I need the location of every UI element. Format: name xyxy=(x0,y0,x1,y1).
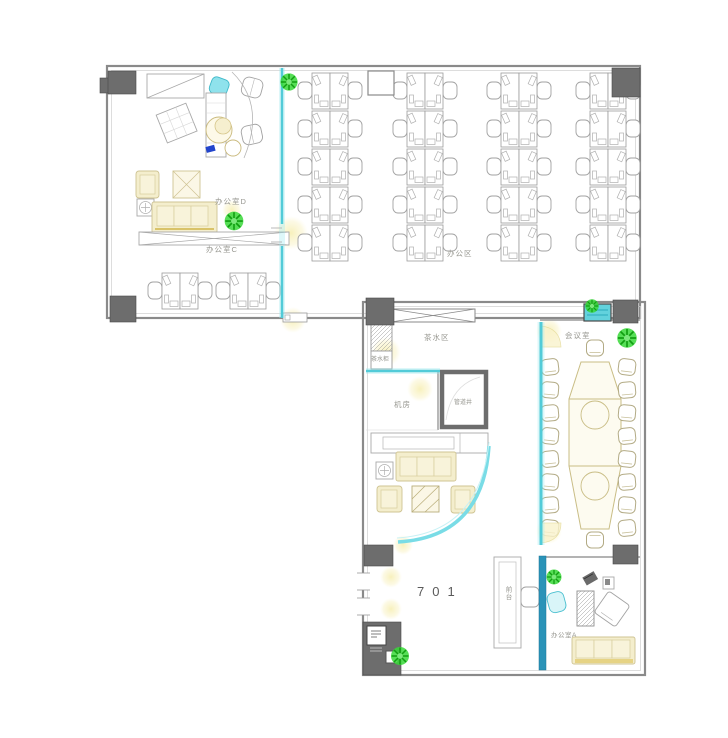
plant-icon xyxy=(225,212,244,231)
meeting-room-furniture xyxy=(541,340,637,548)
open-office-workstations xyxy=(298,71,640,261)
label-machine-room: 机房 xyxy=(394,399,411,410)
label-meeting-room: 会议室 xyxy=(565,330,591,341)
label-tea-cabinet: 茶水柜 xyxy=(371,354,389,363)
label-office-d: 办公室D xyxy=(215,196,247,207)
office-c-workstations xyxy=(148,273,280,309)
plant-icon xyxy=(280,73,297,90)
floorplan-graphic xyxy=(0,0,728,738)
label-tea-area: 茶水区 xyxy=(424,332,450,343)
label-open-office: 办公区 xyxy=(447,248,473,259)
office-d-furniture xyxy=(136,72,289,245)
floorplan: 办公室D 办公室C 办公区 茶水区 茶水柜 机房 管道井 会议室 前台 办公室A… xyxy=(0,0,728,738)
label-unit-number: 701 xyxy=(417,584,463,599)
label-reception-desk: 前台 xyxy=(502,586,512,601)
plant-icon xyxy=(585,299,599,313)
crossed-beam xyxy=(391,309,475,322)
plant-icon xyxy=(617,328,637,348)
plant-icon xyxy=(391,647,409,665)
label-office-a: 办公室A xyxy=(551,629,577,639)
office-a-furniture xyxy=(546,571,635,664)
label-office-c: 办公室C xyxy=(206,244,238,255)
label-pipe-shaft: 管道井 xyxy=(454,397,472,406)
reception-furniture xyxy=(494,557,539,648)
plant-icon xyxy=(547,570,562,585)
